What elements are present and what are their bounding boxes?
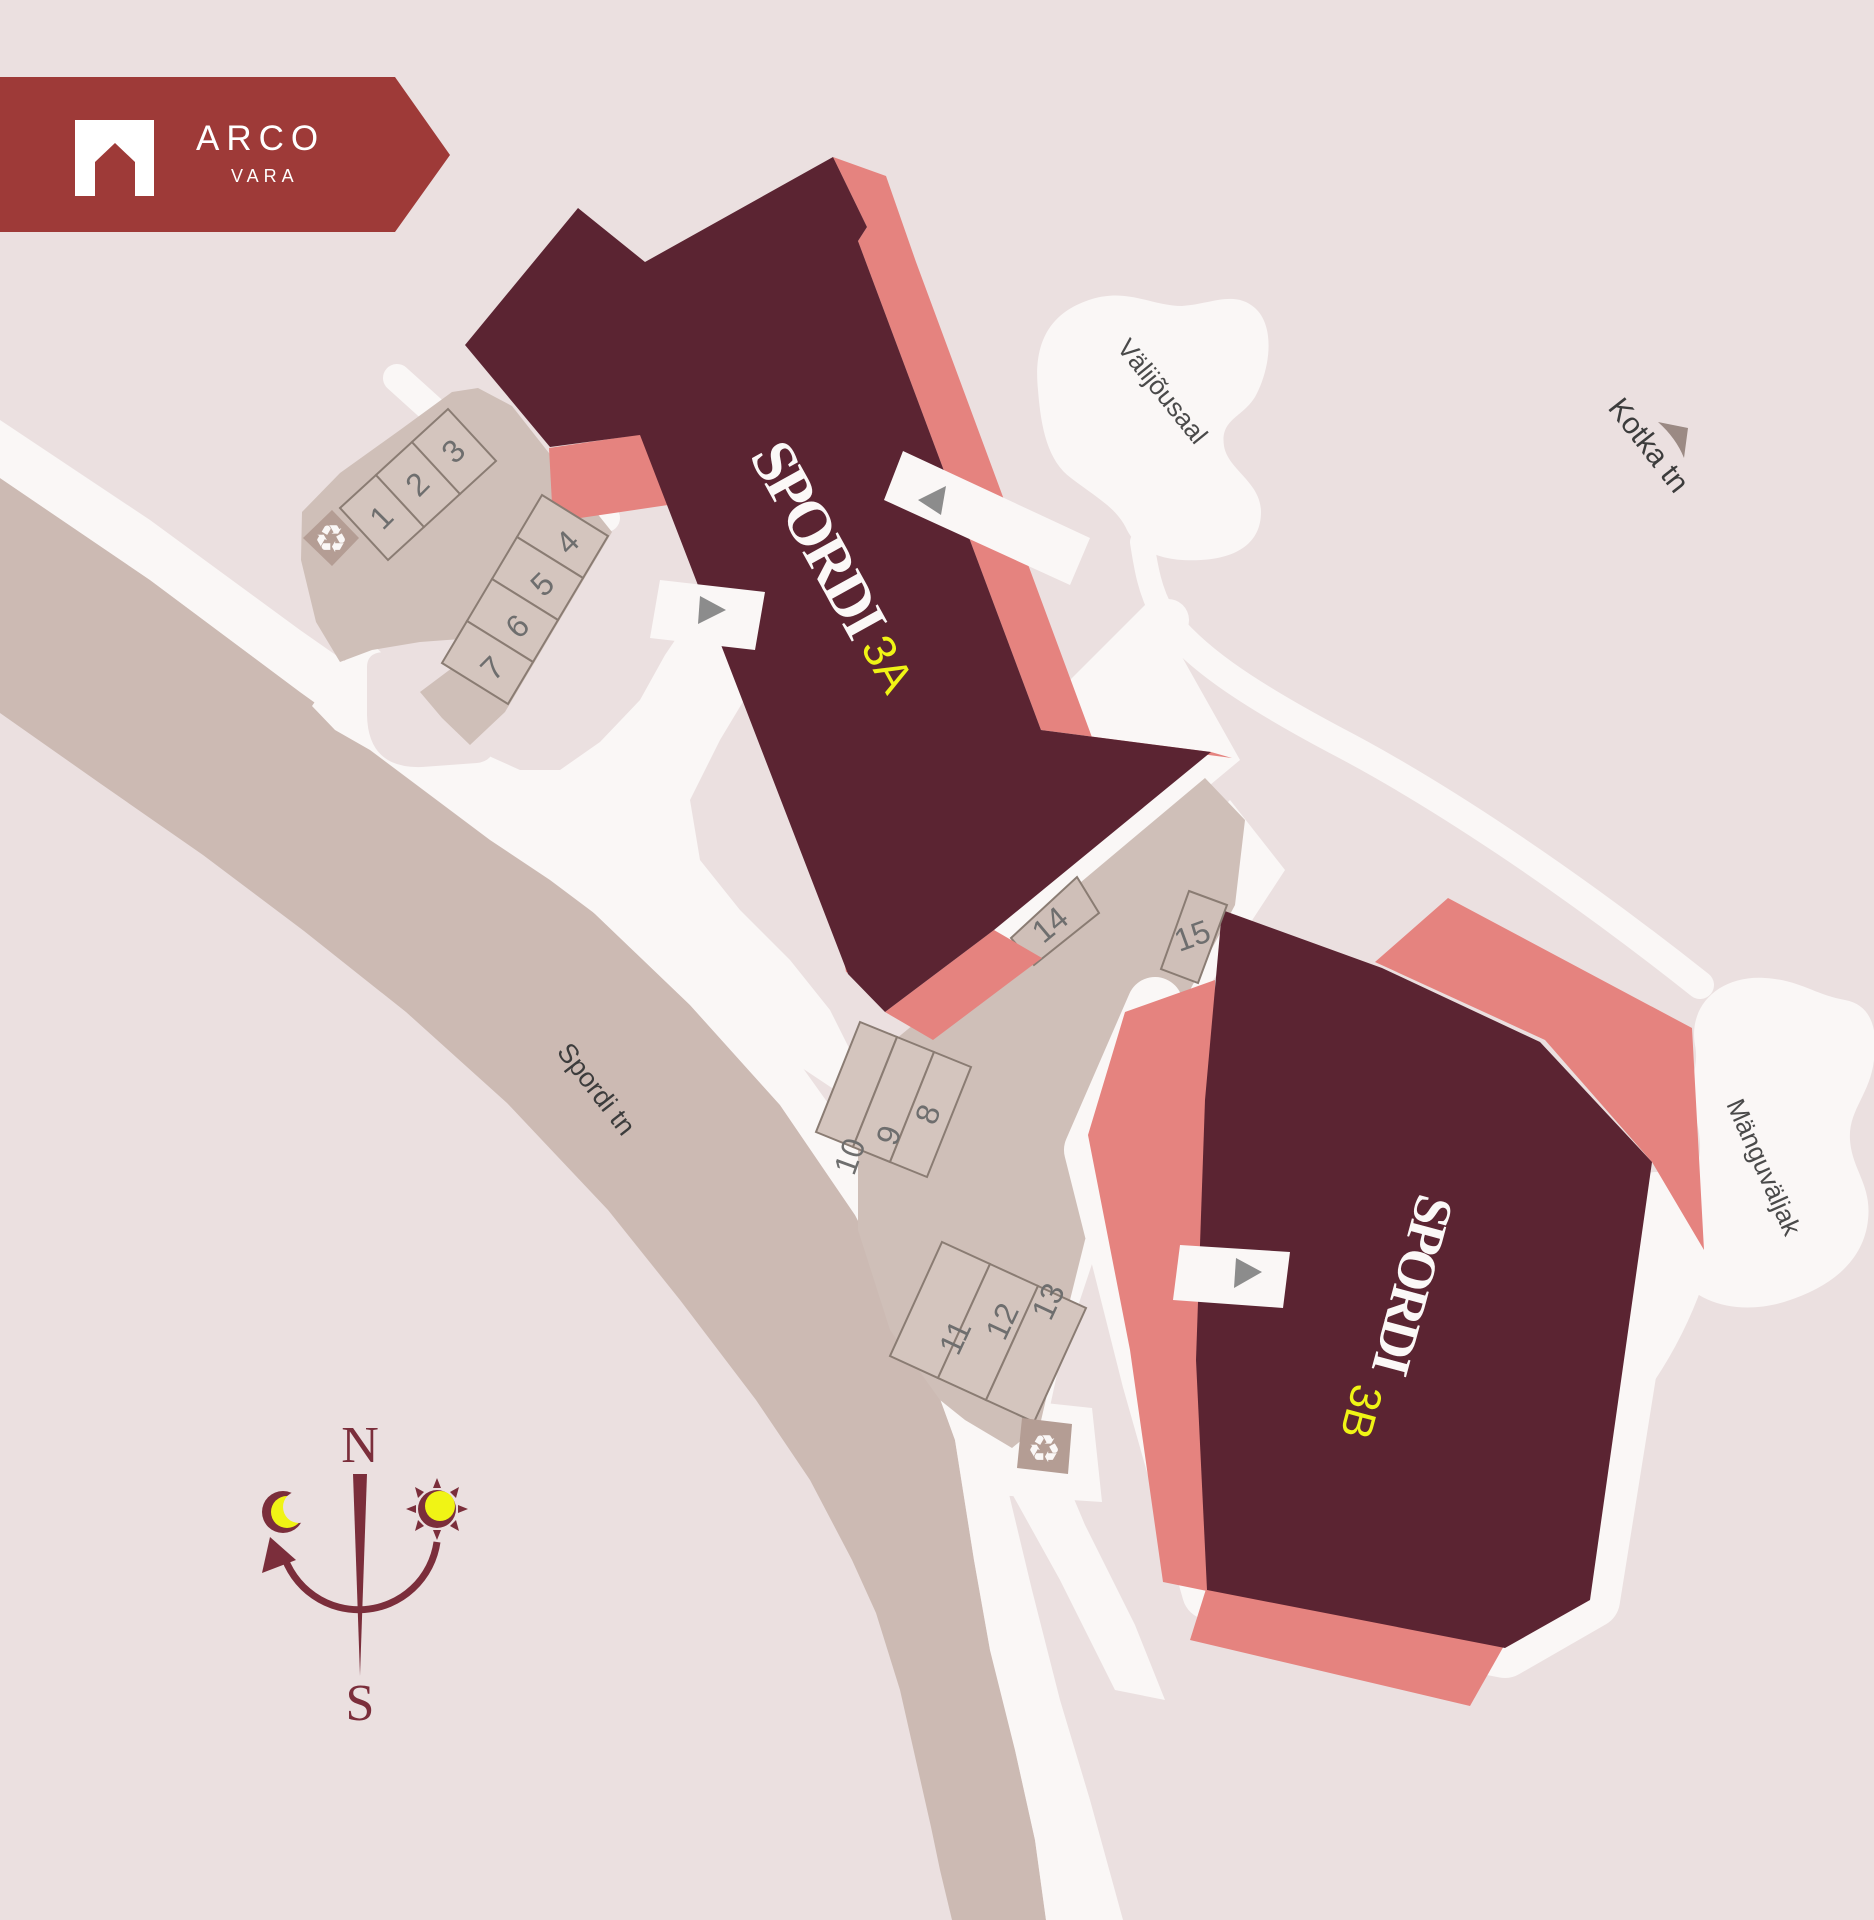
- svg-text:ARCO: ARCO: [196, 119, 325, 158]
- svg-text:♻: ♻: [1027, 1429, 1061, 1471]
- svg-text:VARA: VARA: [231, 166, 299, 186]
- svg-text:N: N: [341, 1417, 379, 1474]
- svg-text:♻: ♻: [314, 519, 348, 561]
- svg-text:S: S: [346, 1675, 375, 1732]
